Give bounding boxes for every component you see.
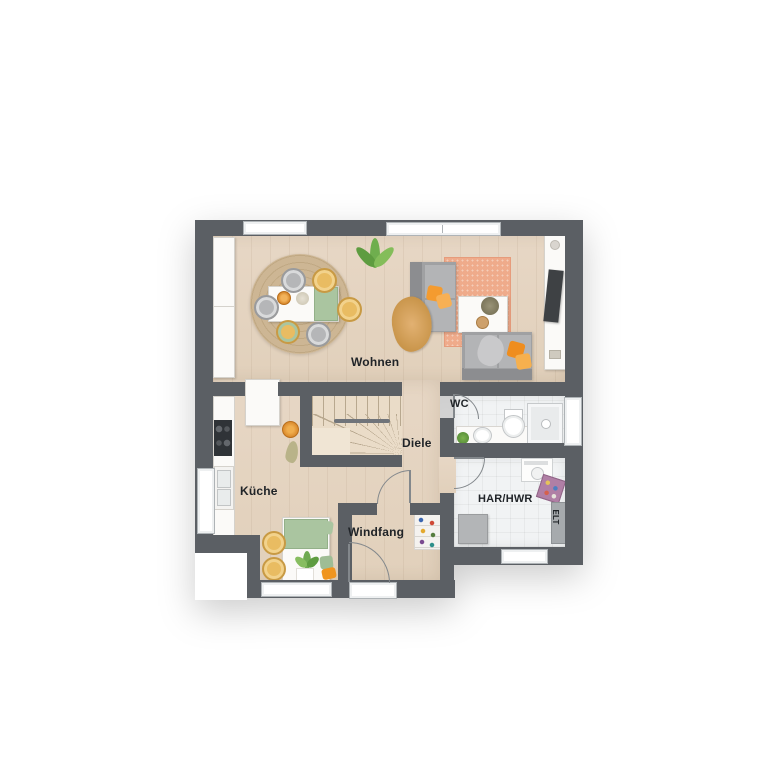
dining-chair xyxy=(254,295,279,320)
label-diele: Diele xyxy=(402,436,432,450)
label-kueche: Küche xyxy=(240,484,278,498)
window-har xyxy=(501,549,548,564)
wall-wohnen-kueche-stub xyxy=(213,382,245,396)
wall-diele-wc xyxy=(440,418,454,458)
wall-wohnen-wc xyxy=(440,382,583,396)
handrail xyxy=(334,419,390,423)
nook-chair xyxy=(262,557,286,581)
window-left-kueche xyxy=(197,468,215,534)
toilet xyxy=(502,409,523,437)
seat-cushion xyxy=(319,520,334,535)
wall-windfang-top-right xyxy=(410,503,440,515)
label-elt: ELT xyxy=(546,507,566,527)
washbasin xyxy=(473,427,492,444)
shower xyxy=(527,403,563,444)
sideboard-decor xyxy=(550,240,560,250)
wall-wohnen-mid xyxy=(278,382,402,396)
coffee-table-plant xyxy=(481,297,499,315)
wardrobe xyxy=(213,237,235,378)
window-top-left xyxy=(243,221,307,235)
window-nook xyxy=(261,582,332,597)
window-right-wc xyxy=(564,397,582,446)
floorplan: Wohnen Küche Diele Windfang WC HAR/HWR E… xyxy=(0,0,775,775)
shoe-rack xyxy=(414,514,442,550)
coffee-table-bowl xyxy=(476,316,489,329)
dining-chair xyxy=(312,268,337,293)
dining-chair xyxy=(306,322,331,347)
label-har-hwr: HAR/HWR xyxy=(478,493,533,505)
tall-cabinet xyxy=(245,379,280,426)
kitchen-sink xyxy=(214,466,234,510)
staircase xyxy=(312,396,402,455)
door-leaf-har xyxy=(454,457,484,459)
label-wc: WC xyxy=(450,398,469,410)
fruit-bowl xyxy=(282,421,299,438)
cooktop-icon xyxy=(214,420,232,456)
label-wohnen: Wohnen xyxy=(351,355,399,369)
stair-landing xyxy=(312,428,350,455)
dining-chair xyxy=(276,320,300,344)
floorplan-canvas: Wohnen Küche Diele Windfang WC HAR/HWR E… xyxy=(0,0,775,775)
exterior-mask xyxy=(195,553,247,600)
pillow xyxy=(515,353,532,370)
table-decor xyxy=(296,292,309,305)
appliance xyxy=(458,514,488,544)
houseplant-icon xyxy=(360,236,392,272)
door-leaf-entrance xyxy=(348,544,350,582)
fruit-bowl xyxy=(277,291,291,305)
window-top-center xyxy=(386,222,501,236)
label-windfang: Windfang xyxy=(348,525,404,539)
door-leaf-windfang xyxy=(409,470,411,503)
wall-wc-har xyxy=(454,443,565,458)
nook-chair xyxy=(262,531,286,555)
sideboard-decor xyxy=(549,350,561,359)
wall-stair-bottom xyxy=(300,455,402,467)
dining-chair xyxy=(281,268,306,293)
dining-chair xyxy=(337,297,362,322)
wall-diele-har xyxy=(440,492,454,598)
entrance-door-panel xyxy=(349,582,397,599)
